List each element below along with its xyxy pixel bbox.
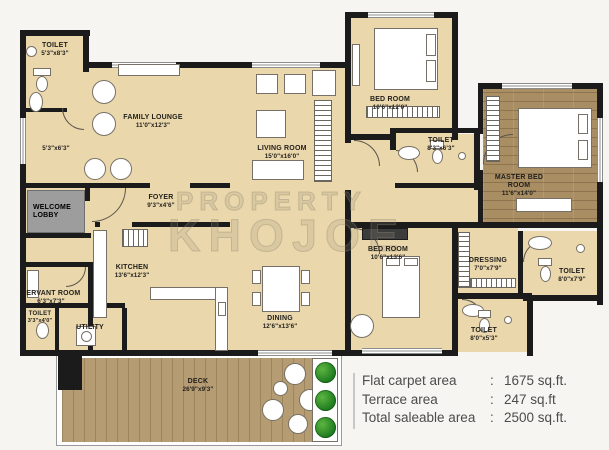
- summary-divider: [353, 373, 355, 429]
- plant-icon: [315, 362, 336, 383]
- kitchen-sink: [218, 302, 226, 316]
- room-label: WELCOME LOBBY: [33, 204, 79, 220]
- room-label-lounge-alcove: 5'3"x6'3": [28, 145, 84, 153]
- area-colon: :: [490, 391, 504, 410]
- wall: [518, 231, 523, 295]
- pillow: [578, 114, 588, 134]
- stove-icon: [122, 229, 148, 247]
- shower-icon: [504, 316, 512, 324]
- wall: [345, 63, 351, 143]
- wall: [20, 30, 90, 36]
- wall: [25, 183, 88, 188]
- room-label-foyer: FOYER 9'3"x4'6": [132, 194, 190, 210]
- room-label-servant-room: SERVANT ROOM 6'3"x7'3": [20, 290, 82, 306]
- wall: [395, 183, 480, 188]
- room-label-family-lounge: FAMILY LOUNGE 11'0"x12'3": [118, 114, 188, 130]
- room-label-bedroom-top: BED ROOM 10'6"x12'0": [358, 96, 422, 112]
- room-label-dining: DINING 12'6"x13'6": [248, 315, 312, 331]
- room-label-toilet-bottom-right: TOILET 8'0"x5'3": [458, 327, 510, 343]
- wall: [395, 128, 480, 133]
- lounge-chair: [84, 158, 106, 180]
- window: [252, 62, 320, 68]
- area-colon: :: [490, 409, 504, 428]
- dining-table: [262, 266, 300, 312]
- shower-icon: [576, 244, 585, 253]
- lounge-chair: [110, 158, 132, 180]
- room-label-kitchen: KITCHEN 13'6"x12'3": [100, 264, 164, 280]
- dining-chair: [301, 270, 310, 284]
- dressing-shelves: [470, 278, 516, 288]
- toilet-fixture: [538, 258, 552, 266]
- room-label-dressing: DRESSING 7'0"x7'9": [460, 257, 516, 273]
- room-label-deck: DECK 26'9"x9'3": [168, 378, 228, 394]
- lounge-chair: [92, 80, 116, 104]
- deck-table: [273, 381, 288, 396]
- pillow: [426, 34, 436, 56]
- wall: [523, 295, 603, 301]
- sofa: [252, 160, 304, 180]
- armchair: [256, 74, 278, 94]
- room-label-living-room: LIVING ROOM 15'0"x16'0": [250, 145, 314, 161]
- area-value: 2500 sq.ft.: [504, 409, 567, 428]
- washing-machine-drum: [81, 331, 92, 342]
- area-value: 247 sq.ft: [504, 391, 567, 410]
- area-row-total: Total saleable area : 2500 sq.ft.: [362, 409, 567, 428]
- room-label-toilet-top-left: TOILET 5'3"x8'3": [30, 42, 80, 58]
- area-colon: :: [490, 372, 504, 391]
- window: [368, 12, 434, 18]
- dining-chair: [252, 292, 261, 306]
- pillow: [578, 140, 588, 160]
- deck-chair: [262, 399, 284, 421]
- area-label: Flat carpet area: [362, 372, 490, 391]
- tv-unit: [118, 64, 180, 76]
- wall: [478, 88, 483, 134]
- washbasin: [29, 92, 43, 112]
- window: [20, 118, 26, 164]
- cabinet: [312, 70, 336, 96]
- dining-chair: [252, 270, 261, 284]
- door-opening: [100, 222, 132, 227]
- deck-sliding-door: [258, 350, 332, 356]
- shelf-unit: [314, 100, 332, 182]
- deck-chair: [288, 414, 308, 434]
- area-row-carpet: Flat carpet area : 1675 sq.ft.: [362, 372, 567, 391]
- plant-icon: [315, 417, 336, 438]
- toilet-fixture: [36, 76, 48, 92]
- area-summary: Flat carpet area : 1675 sq.ft. Terrace a…: [362, 372, 567, 428]
- wall: [452, 12, 458, 140]
- kitchen-island: [215, 287, 228, 351]
- deck-chair: [284, 363, 306, 385]
- dining-chair: [301, 292, 310, 306]
- area-value: 1675 sq.ft.: [504, 372, 567, 391]
- lounge-chair: [92, 112, 116, 136]
- room-label-toilet-servant: TOILET 3'3"x4'0": [20, 310, 60, 326]
- wall: [25, 233, 91, 238]
- wall: [478, 170, 483, 225]
- area-label: Total saleable area: [362, 409, 490, 428]
- wall: [597, 83, 603, 305]
- toilet-fixture: [478, 310, 491, 318]
- wardrobe: [486, 96, 500, 162]
- wall: [122, 308, 127, 352]
- round-chair: [350, 314, 374, 338]
- wall: [351, 134, 395, 140]
- window: [362, 348, 442, 354]
- room-label-toilet-right: TOILET 8'0"x7'9": [548, 268, 596, 284]
- coffee-table: [256, 110, 286, 138]
- bench: [352, 44, 360, 86]
- washbasin: [528, 236, 552, 250]
- room-label-toilet-mid: TOILET 8'3"x6'3": [414, 137, 468, 153]
- room-label-utility: UTILITY: [66, 324, 114, 332]
- pillow: [426, 60, 436, 82]
- shower-icon: [458, 152, 466, 160]
- room-label-bedroom-bottom: BED ROOM 10'6"x13'6": [356, 246, 420, 262]
- area-row-terrace: Terrace area : 247 sq.ft: [362, 391, 567, 410]
- floor-plan: WELCOME LOBBY: [0, 0, 609, 450]
- toilet-fixture: [33, 68, 51, 76]
- wall: [527, 299, 533, 356]
- dresser: [516, 198, 572, 212]
- armchair: [284, 74, 306, 94]
- room-label-master-bedroom: MASTER BED ROOM 11'6"x14'0": [488, 174, 550, 198]
- area-label: Terrace area: [362, 391, 490, 410]
- plant-icon: [315, 390, 336, 411]
- window: [597, 118, 603, 182]
- welcome-lobby: WELCOME LOBBY: [27, 190, 85, 233]
- window: [502, 83, 572, 89]
- wall: [58, 356, 82, 390]
